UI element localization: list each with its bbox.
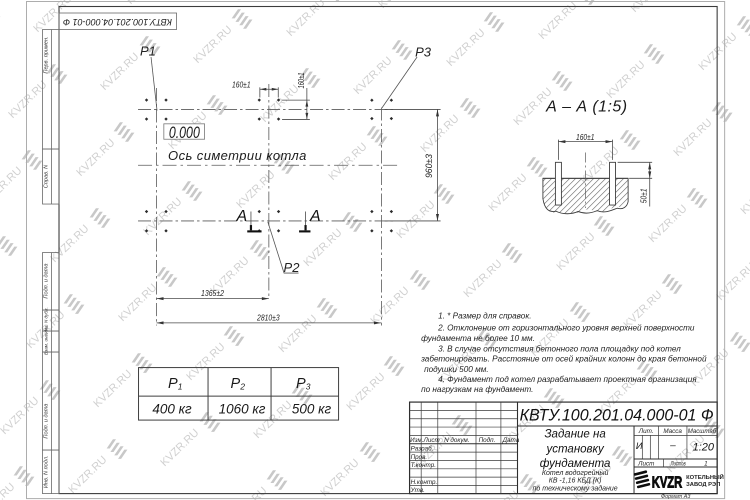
svg-text:400 кг: 400 кг	[152, 402, 192, 417]
svg-text:KVZR.RU: KVZR.RU	[672, 117, 715, 159]
svg-text:Инв. N подл.: Инв. N подл.	[44, 455, 50, 488]
svg-text:KVZR.RU: KVZR.RU	[301, 227, 344, 269]
svg-text:Дата: Дата	[502, 437, 520, 444]
svg-text:KVZR.RU: KVZR.RU	[647, 203, 690, 245]
svg-text:1: 1	[704, 460, 708, 467]
svg-text:Масса: Масса	[663, 428, 682, 435]
svg-text:Пров.: Пров.	[411, 454, 428, 461]
svg-text:Перв. примен.: Перв. примен.	[44, 36, 50, 73]
svg-text:Листов: Листов	[670, 460, 686, 467]
svg-text:KVZR.RU: KVZR.RU	[158, 427, 201, 469]
svg-text:KVZR.RU: KVZR.RU	[629, 0, 672, 15]
svg-text:Разраб.: Разраб.	[411, 445, 434, 453]
svg-text:KVZR.RU: KVZR.RU	[141, 196, 184, 238]
svg-text:подушки 500 мм.: подушки 500 мм.	[424, 365, 489, 374]
svg-text:Формат А3: Формат А3	[661, 494, 690, 500]
svg-text:KVZR.RU: KVZR.RU	[226, 485, 269, 500]
svg-text:KVZR.RU: KVZR.RU	[0, 165, 24, 207]
svg-text:Подп. и дата: Подп. и дата	[44, 264, 50, 299]
svg-text:А: А	[236, 208, 248, 225]
svg-text:0.000: 0.000	[169, 123, 200, 142]
svg-text:KVZR.RU: KVZR.RU	[0, 481, 17, 500]
svg-text:Справ. N: Справ. N	[44, 164, 50, 188]
svg-text:160±1: 160±1	[232, 79, 251, 89]
svg-text:KVZR.RU: KVZR.RU	[665, 433, 708, 475]
svg-text:1060 кг: 1060 кг	[219, 402, 266, 417]
svg-text:KVZR.RU: KVZR.RU	[184, 341, 227, 383]
svg-text:KVZR.RU: KVZR.RU	[605, 59, 648, 101]
svg-text:KVZR.RU: KVZR.RU	[48, 223, 91, 265]
svg-text:Ось симетрии котла: Ось симетрии котла	[168, 148, 307, 163]
svg-text:по нагрузкам на фундамент.: по нагрузкам на фундамент.	[421, 385, 533, 394]
svg-text:160±1: 160±1	[296, 72, 306, 88]
svg-text:KVZR.RU: KVZR.RU	[486, 172, 529, 214]
svg-text:4. Фундамент под котел разраба: 4. Фундамент под котел разрабатывает про…	[438, 375, 697, 384]
svg-text:KVZR.RU: KVZR.RU	[234, 169, 277, 211]
svg-text:ЗАВОД РЭП: ЗАВОД РЭП	[686, 482, 720, 488]
svg-text:KVZR.RU: KVZR.RU	[368, 285, 411, 327]
svg-text:Р2: Р2	[231, 376, 246, 392]
svg-text:KVZR.RU: KVZR.RU	[351, 55, 394, 97]
svg-text:500 кг: 500 кг	[292, 402, 332, 417]
svg-text:KVZR.RU: KVZR.RU	[418, 113, 461, 155]
svg-text:160±1: 160±1	[576, 132, 595, 142]
svg-text:КОТЕЛЬНЫЙ: КОТЕЛЬНЫЙ	[686, 473, 724, 481]
svg-text:KVZR.RU: KVZR.RU	[461, 258, 504, 300]
svg-text:Масштаб: Масштаб	[688, 427, 717, 435]
svg-text:KVZR.RU: KVZR.RU	[6, 79, 49, 121]
svg-text:KVZR.RU: KVZR.RU	[276, 313, 319, 355]
svg-text:3. В случае отсутствия бетонно: 3. В случае отсутствия бетонного пола пл…	[438, 344, 681, 353]
svg-text:KVZR.RU: KVZR.RU	[715, 261, 750, 303]
svg-text:KVZR.RU: KVZR.RU	[326, 141, 369, 183]
svg-text:KVZR.RU: KVZR.RU	[739, 175, 750, 217]
svg-text:Задание на: Задание на	[544, 429, 605, 441]
svg-text:KVZR.RU: KVZR.RU	[284, 0, 327, 39]
svg-text:KVZR.RU: KVZR.RU	[554, 231, 597, 273]
svg-text:KVZR.RU: KVZR.RU	[697, 31, 740, 73]
svg-text:КВ -1,16 КБД (К): КВ -1,16 КБД (К)	[549, 478, 602, 485]
svg-text:1365±2: 1365±2	[201, 288, 224, 298]
svg-text:Подп. и дата: Подп. и дата	[44, 404, 50, 439]
svg-text:N докум.: N докум.	[444, 436, 469, 444]
svg-text:960±3: 960±3	[424, 154, 434, 178]
svg-text:Т.контр.: Т.контр.	[411, 462, 436, 469]
svg-text:Подп.: Подп.	[479, 436, 496, 444]
svg-text:Р2: Р2	[284, 260, 301, 275]
svg-text:KVZR.RU: KVZR.RU	[318, 457, 361, 499]
svg-text:Лист: Лист	[637, 460, 654, 467]
svg-text:Р1: Р1	[140, 44, 156, 59]
svg-text:2. Отклонение от горизонтально: 2. Отклонение от горизонтального уровня …	[437, 324, 695, 333]
svg-text:KVZR.RU: KVZR.RU	[91, 368, 134, 410]
svg-text:Лит.: Лит.	[638, 428, 654, 435]
svg-text:1. * Размер для справок.: 1. * Размер для справок.	[438, 312, 531, 321]
svg-text:И: И	[636, 441, 643, 451]
svg-text:KVZR.RU: KVZR.RU	[344, 371, 387, 413]
svg-text:установку: установку	[545, 443, 605, 455]
svg-text:Изм.Лист: Изм.Лист	[410, 437, 440, 444]
svg-text:50±1: 50±1	[639, 188, 649, 203]
svg-text:забетонировать. Расстояние от: забетонировать. Расстояние от осей крайн…	[420, 355, 707, 364]
svg-text:Р1: Р1	[168, 376, 183, 392]
svg-text:Р3: Р3	[415, 45, 432, 60]
svg-text:КВТУ.100.201.04.000-01 Ф: КВТУ.100.201.04.000-01 Ф	[63, 17, 172, 27]
svg-text:KVZR.RU: KVZR.RU	[116, 282, 159, 324]
svg-text:KVZR.RU: KVZR.RU	[0, 395, 41, 437]
svg-text:Утв.: Утв.	[410, 487, 425, 494]
svg-text:А: А	[309, 208, 321, 225]
svg-text:Р3: Р3	[296, 376, 311, 392]
svg-text:KVZR.RU: KVZR.RU	[74, 137, 117, 179]
svg-text:KVZR.RU: KVZR.RU	[394, 199, 437, 241]
svg-text:2810±3: 2810±3	[256, 312, 280, 322]
svg-text:Котел водогрейный: Котел водогрейный	[542, 469, 609, 477]
svg-text:KVZR.RU: KVZR.RU	[191, 24, 234, 66]
svg-text:KVZR.RU: KVZR.RU	[732, 492, 750, 500]
svg-text:Взам. инв. N: Взам. инв. N	[44, 328, 49, 355]
svg-text:1:20: 1:20	[693, 442, 715, 454]
svg-text:–: –	[669, 441, 676, 452]
svg-text:KVZR.RU: KVZR.RU	[66, 454, 109, 496]
svg-text:фундамента не более 10 мм.: фундамента не более 10 мм.	[421, 334, 535, 343]
svg-text:А – А (1:5): А – А (1:5)	[545, 99, 627, 116]
svg-text:KVZR.RU: KVZR.RU	[98, 51, 141, 93]
svg-text:КВТУ.100.201.04.000-01 Ф: КВТУ.100.201.04.000-01 Ф	[520, 406, 714, 424]
svg-text:KVZR.RU: KVZR.RU	[444, 27, 487, 69]
svg-text:по техническому задание: по техническому задание	[533, 485, 618, 493]
svg-text:KVZR: KVZR	[652, 475, 683, 492]
svg-text:фундамента: фундамента	[540, 458, 611, 470]
svg-text:Н.контр.: Н.контр.	[411, 479, 438, 486]
